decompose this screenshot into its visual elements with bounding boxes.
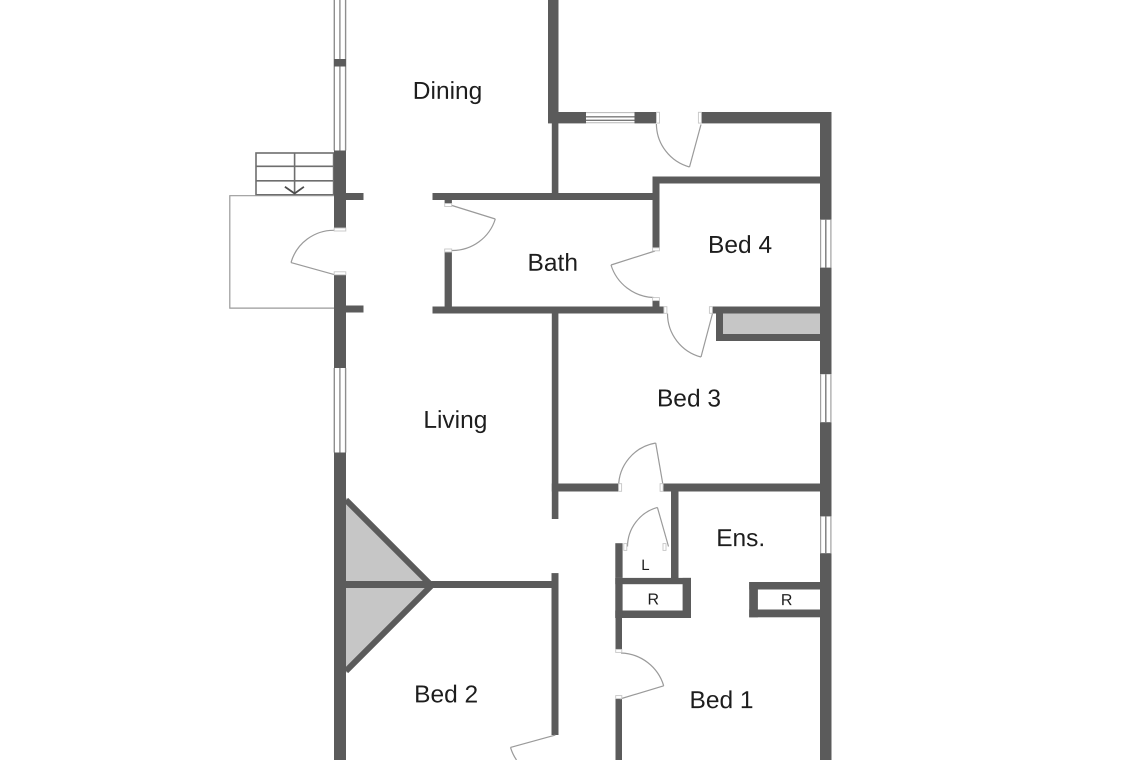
- svg-text:Bed 3: Bed 3: [657, 385, 721, 412]
- svg-text:Ens.: Ens.: [716, 525, 765, 552]
- svg-text:Bed 4: Bed 4: [708, 232, 772, 259]
- svg-text:Dining: Dining: [413, 78, 482, 105]
- svg-text:L: L: [641, 557, 649, 574]
- svg-text:R: R: [647, 592, 659, 609]
- svg-text:Living: Living: [423, 407, 487, 434]
- svg-text:Bed 2: Bed 2: [414, 681, 478, 708]
- svg-text:Bed 1: Bed 1: [690, 687, 754, 714]
- svg-text:Bath: Bath: [528, 250, 578, 277]
- svg-text:R: R: [781, 592, 793, 609]
